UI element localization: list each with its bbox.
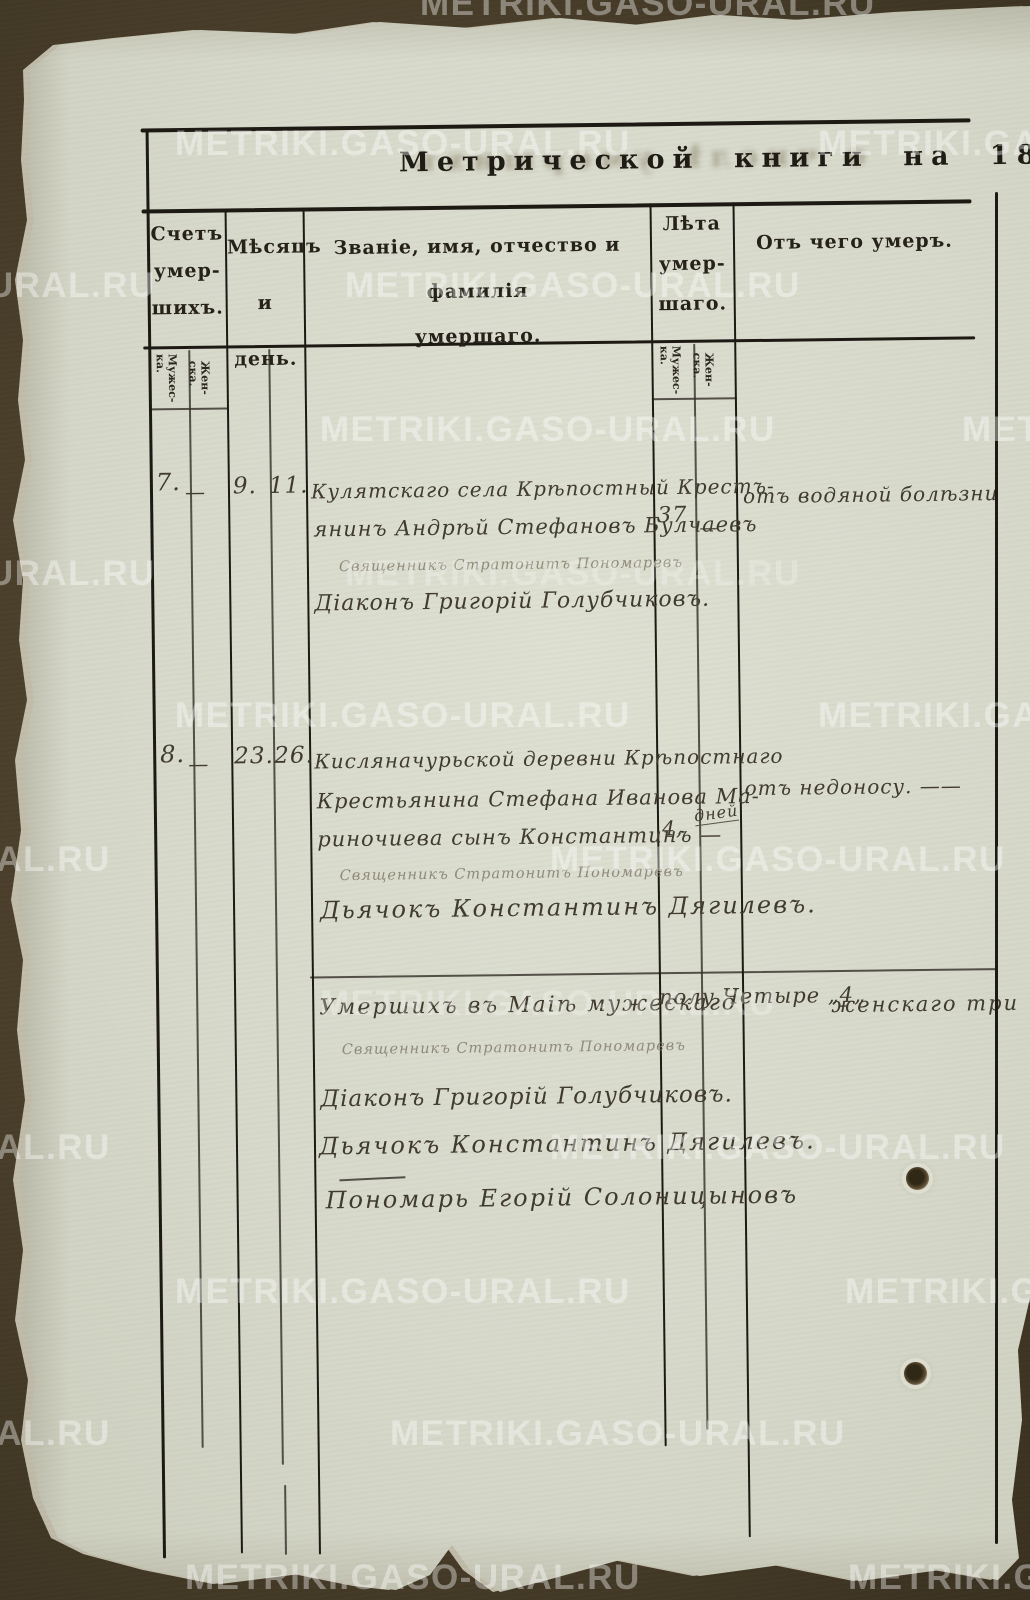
scanned-metrical-book-page: о числѣ умершихъ Метрической книги на 18… [0,0,1030,1600]
age-female-dash: — [699,517,718,538]
age-male: 37 [657,503,687,528]
watermark-text: METRIKI.GASO-URAL.RU [345,554,801,594]
count-male: 8. [160,740,185,768]
watermark-text: METRIKI.GASO-URAL.RU [420,0,876,24]
name-line: янинъ Андрѣй Стефановъ Булчаевъ [313,512,757,541]
cause-of-death: отъ недоносу. —— [745,774,962,801]
gender-label-female: Жен-ска. [186,361,210,395]
watermark-text: METRIKI.GASO-URAL.RU [175,1272,631,1312]
month-value: 9. [233,473,257,499]
gender-label-female: Жен-ска. [690,352,714,386]
day-value: 26. [274,742,314,768]
punch-hole [906,1167,929,1190]
table-rule [225,208,243,1553]
watermark-text: METRIKI.GASO-URAL.RU [848,1558,1030,1598]
watermark-text: METRIKI.GASO-URAL.RU [962,410,1030,450]
count-female-dash: — [185,480,206,504]
watermark-text: METRIKI.GASO-URAL.RU [0,1414,111,1454]
cause-of-death: отъ водяной болѣзни [743,481,999,508]
watermark-text: METRIKI.GASO-URAL.RU [550,840,1006,880]
table-rule [284,1485,287,1555]
table-rule [142,199,972,213]
clergy-signature: Діаконъ Григорій Голубчиковъ. [320,1081,733,1112]
table-rule [303,208,321,1555]
gender-label-male: Мужес-ка. [658,346,683,395]
count-female-dash: — [188,752,209,776]
pen-flourish [339,1176,405,1181]
punch-hole [904,1362,927,1385]
count-male: 7. [156,468,181,496]
summary-text: женскаго три [831,991,1019,1017]
table-rule [693,344,708,1430]
header-month-day-column: Мѣсяцъ и день. [227,219,304,388]
watermark-text: METRIKI.GASO-URAL.RU [345,266,801,306]
age-male: 4, [662,816,683,840]
header-age-column: Лѣта умер- шаго. [652,203,733,324]
watermark-text: METRIKI.GASO-URAL.RU [0,1128,111,1168]
printed-form: о числѣ умершихъ Метрической книги на 18… [0,0,1030,1600]
name-line: Кулятскаго села Крѣпостный Крестъ- [311,474,775,504]
gender-label-male: Мужес-ка. [154,354,179,403]
watermark-text: METRIKI.GASO-URAL.RU [818,124,1030,164]
watermark-text: METRIKI.GASO-URAL.RU [818,696,1030,736]
watermark-text: METRIKI.GASO-URAL.RU [320,984,776,1024]
watermark-text: METRIKI.GASO-URAL.RU [175,696,631,736]
table-rule [310,968,998,978]
watermark-text: METRIKI.GASO-URAL.RU [0,266,156,306]
watermark-text: METRIKI.GASO-URAL.RU [845,1272,1030,1312]
header-cause-column: Отъ чего умеръ. [737,222,972,262]
watermark-text: METRIKI.GASO-URAL.RU [175,124,631,164]
watermark-text: METRIKI.GASO-URAL.RU [0,840,111,880]
clergy-signature: Священникъ Стратонитъ Пономаревъ [342,1038,686,1058]
watermark-text: METRIKI.GASO-URAL.RU [390,1414,846,1454]
name-line: Кисляначурьской деревни Крѣпостнаго [314,744,784,774]
clergy-signature: Пономарь Егорій Солоницыновъ [325,1181,798,1215]
watermark-text: METRIKI.GASO-URAL.RU [0,554,156,594]
header-count-column: Счетъ умер- шихъ. [149,215,226,327]
day-value: 11. [269,472,309,498]
month-value: 23. [234,743,274,769]
watermark-text: METRIKI.GASO-URAL.RU [185,1558,641,1598]
watermark-text: METRIKI.GASO-URAL.RU [550,1128,1006,1168]
table-rule [146,128,166,1558]
watermark-text: METRIKI.GASO-URAL.RU [320,410,776,450]
